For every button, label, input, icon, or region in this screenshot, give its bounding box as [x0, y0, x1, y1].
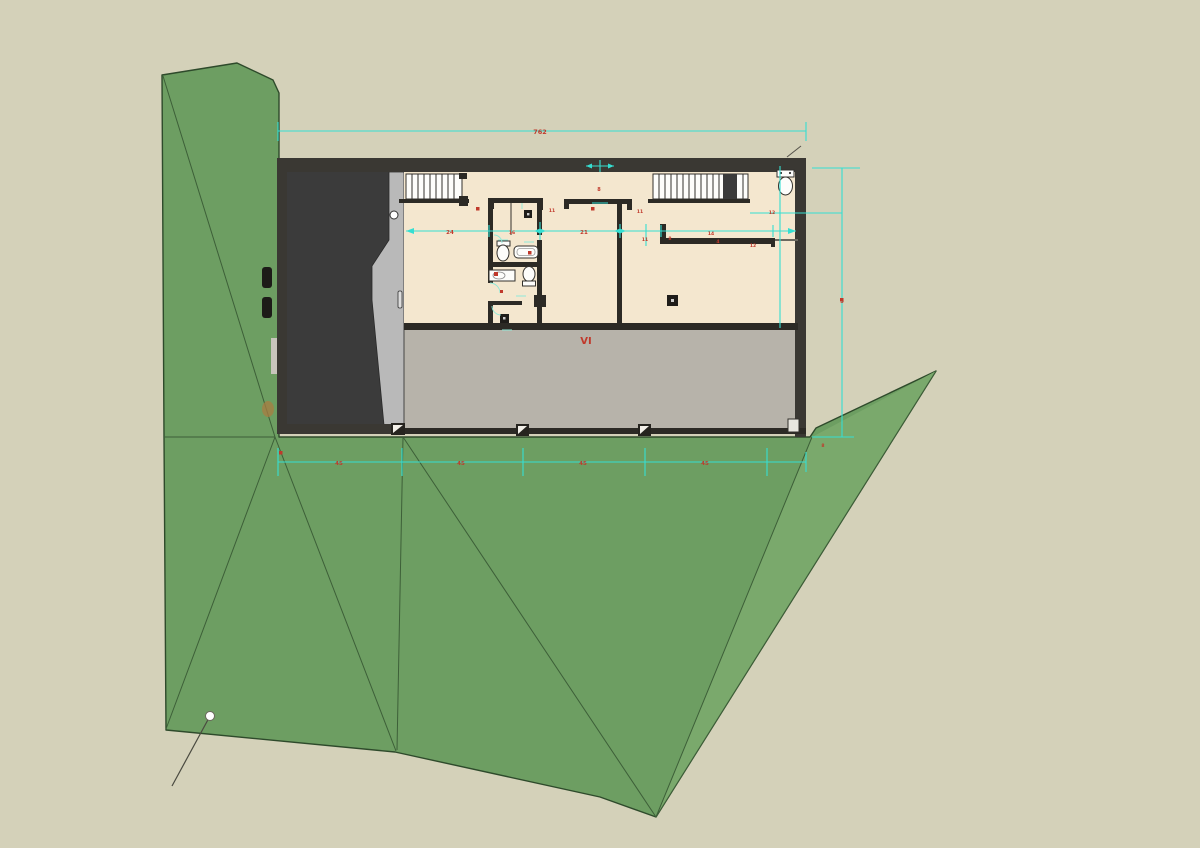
row-label-11: 11 — [642, 237, 648, 243]
row-label-12: 12 — [750, 243, 756, 249]
left-wall-fixture — [271, 338, 277, 374]
terrain-dirt-patch — [262, 401, 274, 417]
dim-label-bottom-1: 45 — [335, 461, 343, 467]
staircase-right — [648, 174, 750, 203]
door-handle — [398, 291, 402, 308]
dim-label-bottom-4: 45 — [701, 461, 709, 467]
dim-label-top: 762 — [533, 128, 547, 136]
dim-label-11-left: 11 — [549, 208, 555, 214]
dim-label-bottom-right: 8 — [821, 443, 824, 449]
row-label-16: 16 — [509, 230, 515, 236]
survey-point — [206, 712, 215, 721]
terrace-slab — [404, 326, 802, 430]
wall-bottom-garage — [277, 424, 404, 434]
dim-label-bottom-2: 45 — [457, 461, 465, 467]
row-label-4: 4 — [716, 239, 719, 245]
wall-right — [795, 158, 806, 437]
staircase-left — [399, 173, 469, 206]
row-label-21: 21 — [580, 230, 588, 236]
wall-top — [277, 158, 806, 172]
col-label-12: 12 — [769, 210, 775, 216]
door-knob — [390, 211, 398, 219]
row-label-14: 14 — [708, 231, 714, 237]
toilet-lower — [523, 267, 535, 282]
wall-main-horizontal — [404, 323, 798, 330]
dim-label-bottom-3: 45 — [579, 461, 587, 467]
col-label-8: 8 — [668, 236, 671, 242]
bathtub — [514, 246, 538, 258]
model-viewport[interactable]: 762 9 45 45 45 45 8 8 11 11 24 16 21 11 … — [0, 0, 1200, 848]
room-label-vi: VI — [580, 336, 591, 347]
wall-bottom-slab-edge — [398, 428, 806, 434]
wall-left — [277, 158, 287, 433]
exterior-knob-lower — [262, 297, 272, 318]
row-label-24: 24 — [446, 230, 454, 236]
exterior-knob-upper — [262, 267, 272, 288]
building-plan — [262, 146, 842, 437]
dim-label-11-mid: 11 — [637, 209, 643, 215]
stair-landing — [723, 174, 737, 199]
plan-canvas: 762 9 45 45 45 45 8 8 11 11 24 16 21 11 … — [0, 0, 1200, 848]
dim-label-opening: 8 — [597, 187, 601, 193]
